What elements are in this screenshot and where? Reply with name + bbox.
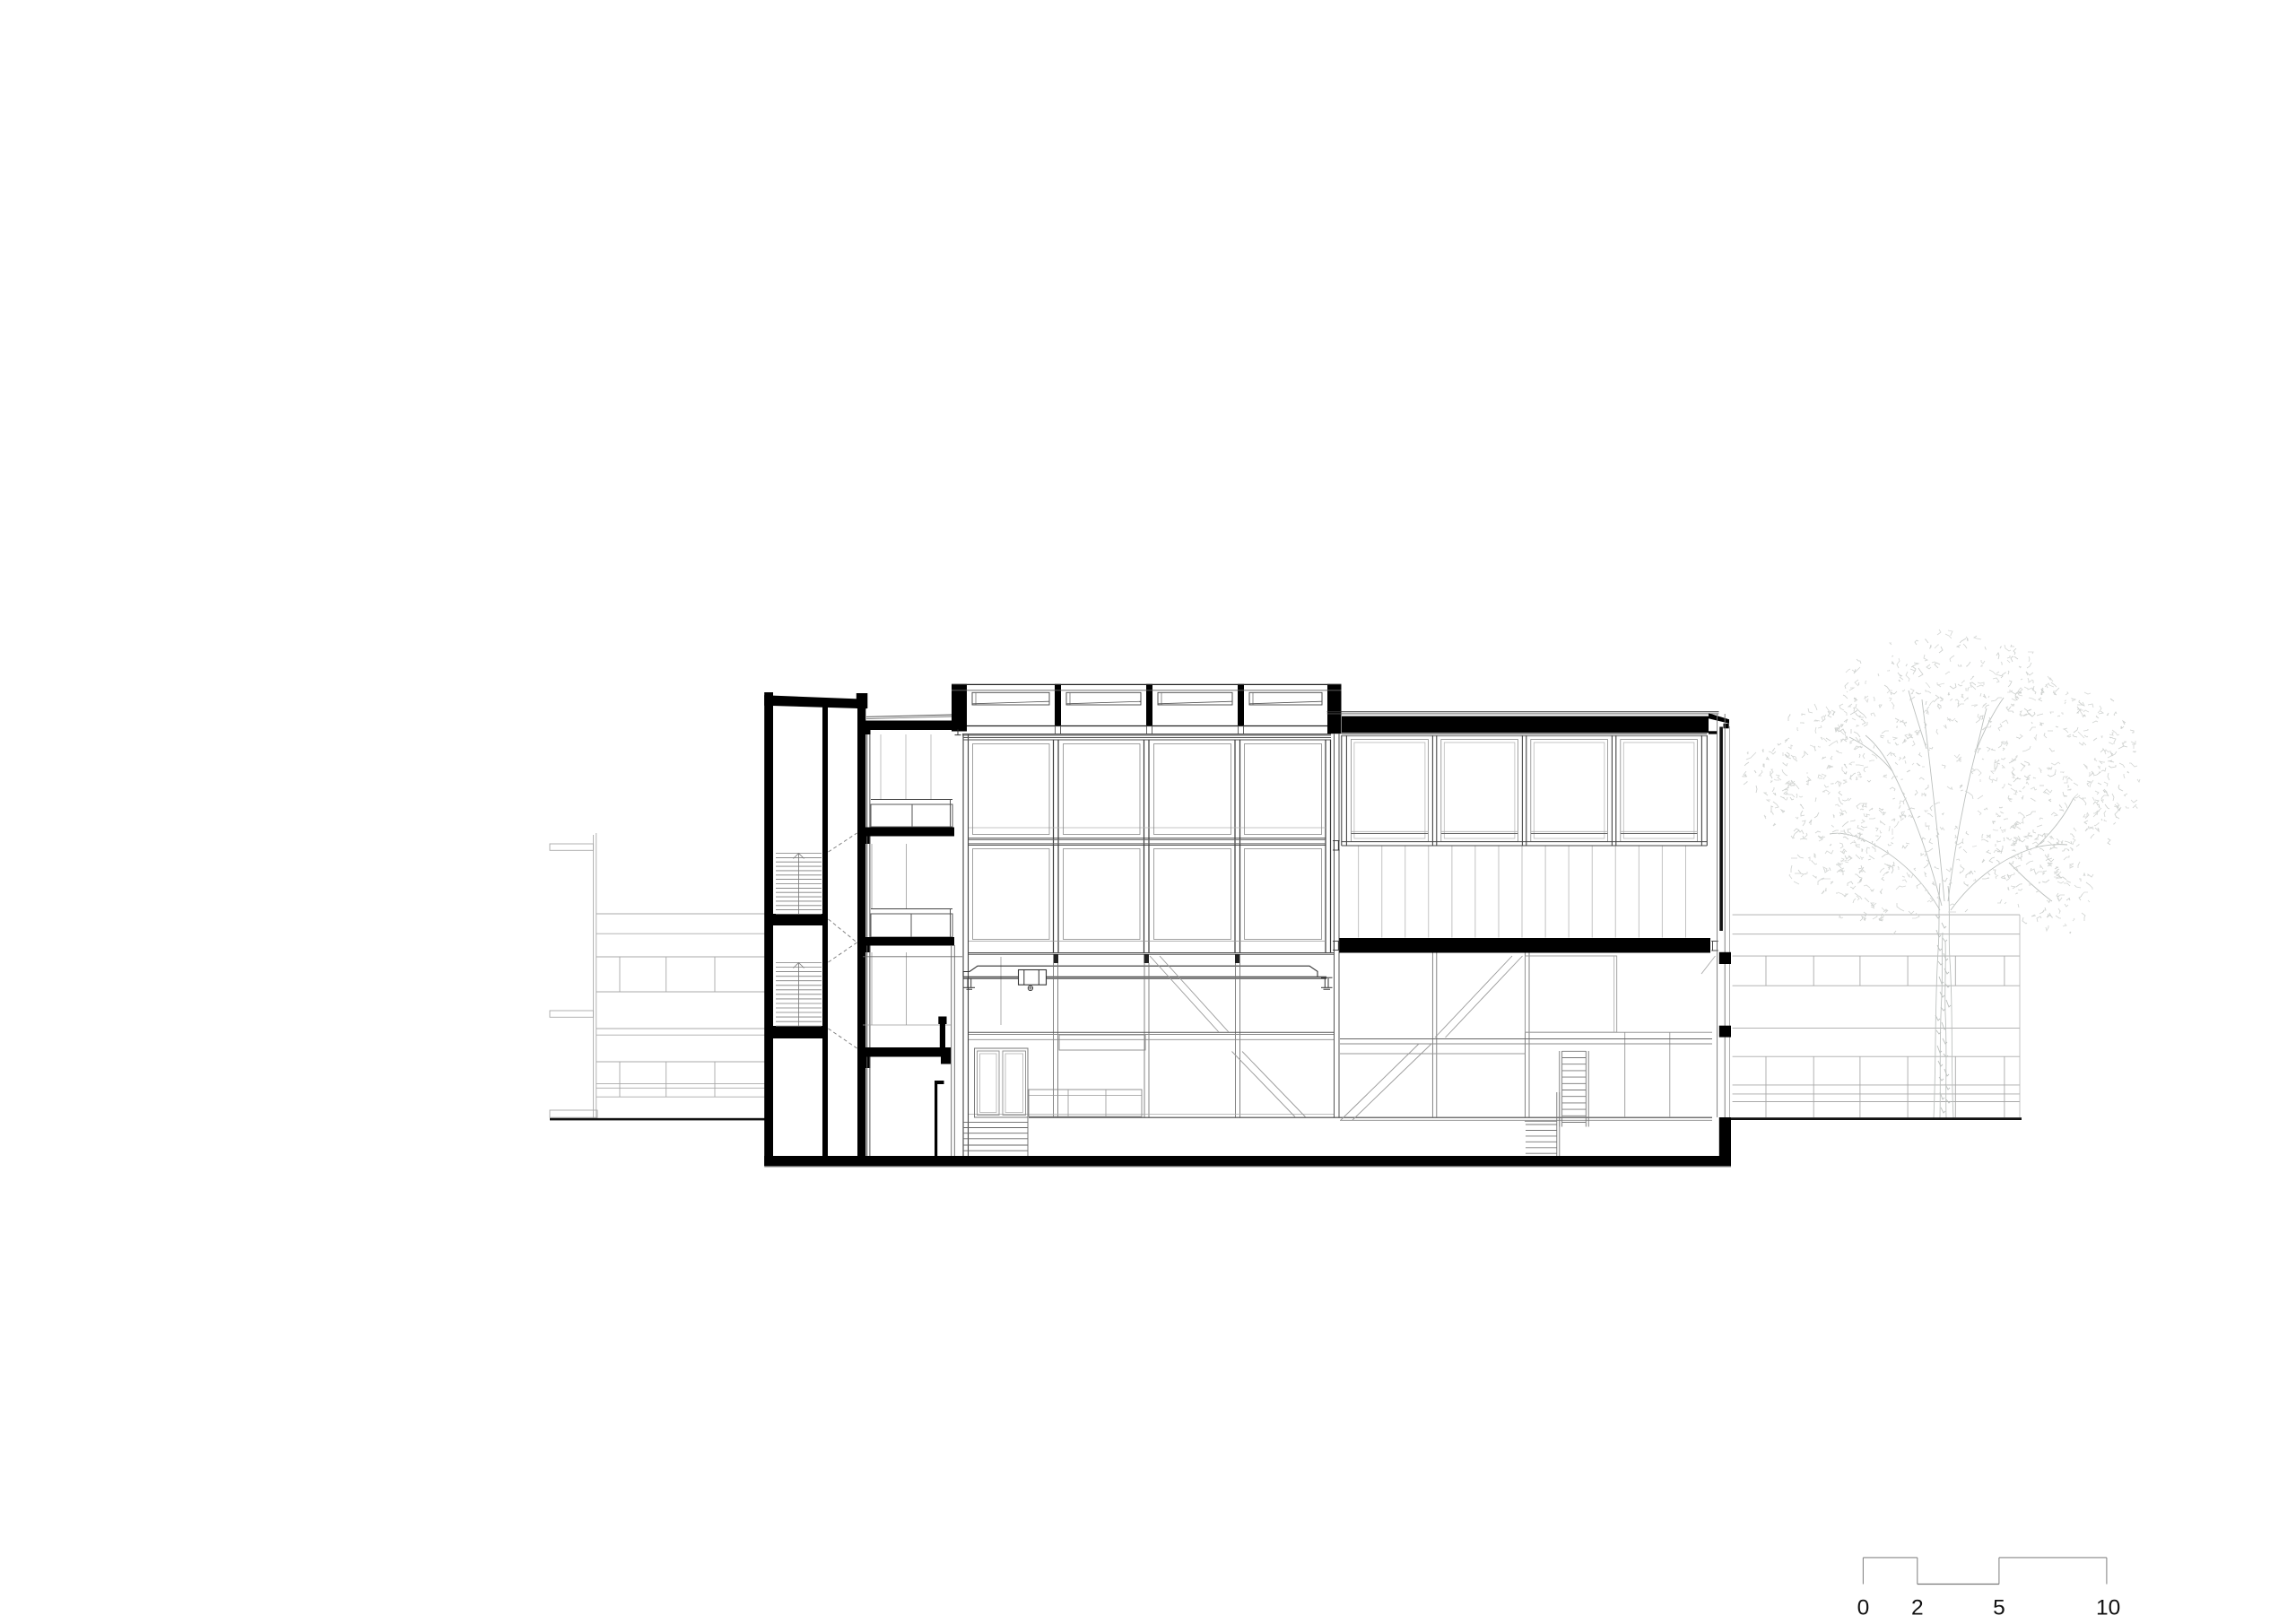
svg-text:5: 5 <box>1993 1596 2005 1620</box>
svg-text:10: 10 <box>2096 1596 2120 1620</box>
svg-text:2: 2 <box>1911 1596 1924 1620</box>
svg-text:0: 0 <box>1857 1596 1870 1620</box>
